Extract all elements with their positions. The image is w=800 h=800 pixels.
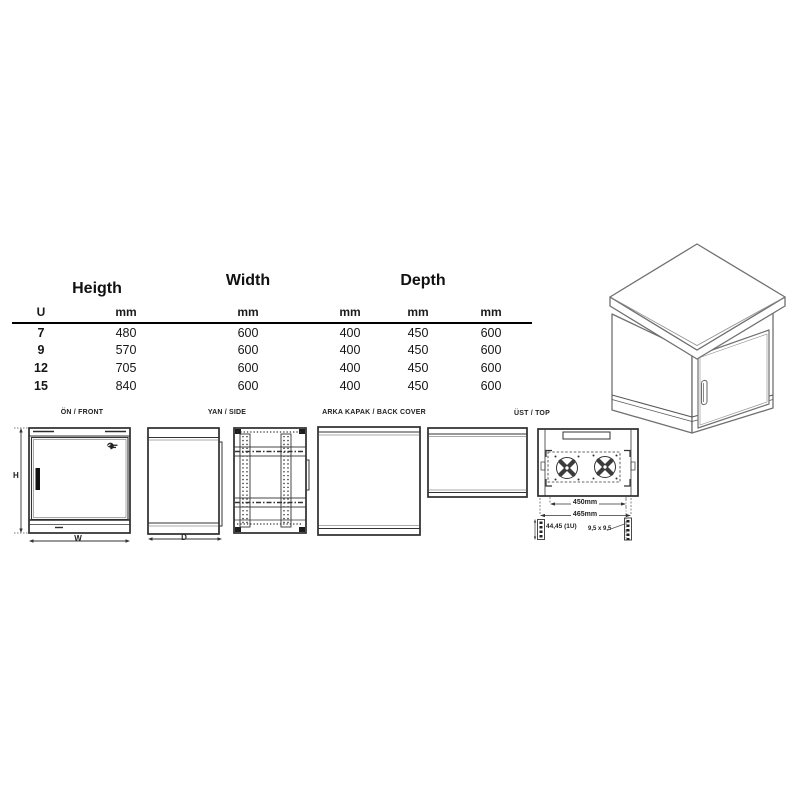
- back-cover-drawing: [316, 424, 424, 538]
- col-header-depth: Depth: [314, 272, 532, 305]
- front-view-drawing: [10, 420, 145, 548]
- cell-depth3: 600: [450, 361, 532, 375]
- side-view-drawing: [143, 420, 235, 548]
- back-cover-outline: [318, 427, 420, 535]
- table-row: 9 570 600 400 450 600: [12, 342, 532, 360]
- unit-header-mm: mm: [450, 305, 532, 322]
- table-unit-header-row: U mm mm mm mm mm: [12, 305, 532, 324]
- table-row: 15 840 600 400 450 600: [12, 377, 532, 395]
- col-header-height: Heigth: [12, 272, 182, 305]
- cell-height: 840: [70, 379, 182, 393]
- cell-width: 600: [182, 361, 314, 375]
- table-group-header-row: Heigth Width Depth: [12, 272, 532, 305]
- top-view-label: ÜST / TOP: [487, 410, 577, 417]
- rack-rail-icon: [534, 520, 545, 540]
- inner-width-dim-line: [550, 502, 626, 505]
- dimensions-table: Heigth Width Depth U mm mm mm mm mm 7 48…: [12, 272, 532, 394]
- cell-width: 600: [182, 326, 314, 340]
- door-handle: [36, 468, 41, 490]
- cell-u: 15: [12, 379, 70, 393]
- unit-header-mm: mm: [314, 305, 386, 322]
- frame-outline: [234, 428, 306, 533]
- rack-rail-icon: [240, 434, 250, 527]
- fan-plate: [548, 452, 620, 482]
- frame-door-edge: [306, 460, 309, 490]
- outer-width-dim-line: [540, 514, 631, 517]
- cell-u: 7: [12, 326, 70, 340]
- cell-depth2: 450: [386, 379, 450, 393]
- brand-logo-icon: [107, 443, 118, 450]
- top-fan-view-drawing: [532, 426, 646, 548]
- cell-depth1: 400: [314, 326, 386, 340]
- front-door: [32, 438, 129, 520]
- unit-header-mm: mm: [182, 305, 314, 322]
- cell-u: 9: [12, 343, 70, 357]
- fan-icon: [593, 455, 618, 480]
- table-row: 12 705 600 400 450 600: [12, 359, 532, 377]
- cabinet-3d-drawing: [592, 233, 797, 443]
- side-view-label: YAN / SIDE: [177, 409, 277, 416]
- cell-height: 570: [70, 343, 182, 357]
- cell-u: 12: [12, 361, 70, 375]
- cell-depth3: 600: [450, 343, 532, 357]
- cell-depth3: 600: [450, 379, 532, 393]
- unit-header-u: U: [12, 305, 70, 322]
- cell-depth2: 450: [386, 343, 450, 357]
- side-frame-drawing: [230, 420, 314, 540]
- back-view-label: ARKA KAPAK / BACK COVER: [294, 409, 454, 416]
- fan-icon: [555, 456, 580, 481]
- cell-depth2: 450: [386, 326, 450, 340]
- unit-header-mm: mm: [70, 305, 182, 322]
- cell-height: 480: [70, 326, 182, 340]
- cell-depth1: 400: [314, 379, 386, 393]
- top-cover-outline: [428, 428, 527, 497]
- side-cabinet-outline: [148, 428, 219, 534]
- crossbar: [234, 498, 306, 507]
- spec-sheet-page: Heigth Width Depth U mm mm mm mm mm 7 48…: [0, 0, 800, 800]
- crossbar: [234, 447, 306, 456]
- front-view-label: ÖN / FRONT: [27, 409, 137, 416]
- cell-width: 600: [182, 379, 314, 393]
- col-header-width: Width: [182, 272, 314, 305]
- cell-width: 600: [182, 343, 314, 357]
- cell-height: 705: [70, 361, 182, 375]
- table-row: 7 480 600 400 450 600: [12, 324, 532, 342]
- cell-depth1: 400: [314, 361, 386, 375]
- unit-header-mm: mm: [386, 305, 450, 322]
- rack-rail-icon: [281, 434, 291, 527]
- cabinet-door-handle: [702, 380, 708, 405]
- cell-depth1: 400: [314, 343, 386, 357]
- cell-depth2: 450: [386, 361, 450, 375]
- side-door-edge: [219, 442, 222, 526]
- top-cover-drawing: [426, 426, 530, 500]
- cell-depth3: 600: [450, 326, 532, 340]
- rack-rail-icon: [608, 518, 632, 540]
